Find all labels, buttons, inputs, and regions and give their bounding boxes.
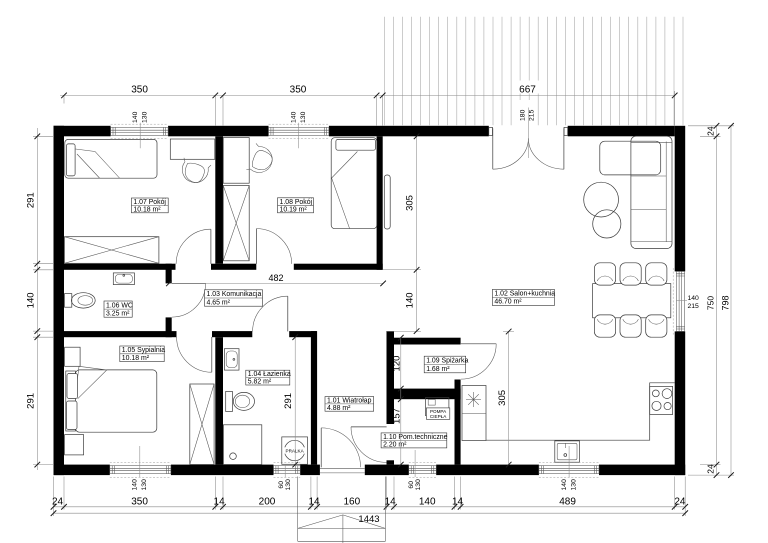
svg-text:1.10 Pom.techniczne: 1.10 Pom.techniczne <box>383 434 448 441</box>
svg-text:667: 667 <box>519 84 536 95</box>
svg-text:157: 157 <box>392 408 403 424</box>
svg-text:1.06 WC: 1.06 WC <box>106 302 133 309</box>
svg-text:215: 215 <box>688 303 700 310</box>
svg-text:120: 120 <box>392 356 403 372</box>
svg-text:482: 482 <box>268 273 283 283</box>
svg-text:130: 130 <box>300 111 307 123</box>
svg-text:798: 798 <box>721 295 731 310</box>
svg-text:291: 291 <box>25 192 36 208</box>
svg-text:1.03 Komunikacja: 1.03 Komunikacja <box>207 291 262 298</box>
svg-text:140: 140 <box>405 292 416 308</box>
svg-text:130: 130 <box>571 479 578 491</box>
svg-text:4.65 m²: 4.65 m² <box>207 299 231 306</box>
svg-text:14: 14 <box>308 496 320 507</box>
svg-text:140: 140 <box>132 111 139 123</box>
svg-text:489: 489 <box>559 496 576 507</box>
svg-text:140: 140 <box>132 479 139 491</box>
svg-text:750: 750 <box>706 296 716 310</box>
svg-text:305: 305 <box>497 390 508 406</box>
svg-text:130: 130 <box>141 479 148 491</box>
svg-text:350: 350 <box>290 84 307 95</box>
svg-text:46.70 m²: 46.70 m² <box>494 299 522 306</box>
svg-text:140: 140 <box>25 292 36 308</box>
svg-text:10.19 m²: 10.19 m² <box>280 206 308 213</box>
svg-text:200: 200 <box>259 496 276 507</box>
svg-text:24: 24 <box>674 496 686 507</box>
svg-text:4.88 m²: 4.88 m² <box>327 405 351 412</box>
svg-text:291: 291 <box>25 393 36 409</box>
svg-text:350: 350 <box>131 84 148 95</box>
svg-text:10.18 m²: 10.18 m² <box>133 207 161 214</box>
svg-text:1.04 Łazienka: 1.04 Łazienka <box>248 371 291 378</box>
svg-text:130: 130 <box>415 479 422 491</box>
svg-text:24: 24 <box>52 496 64 507</box>
svg-text:140: 140 <box>419 496 436 507</box>
svg-text:14: 14 <box>452 496 464 507</box>
svg-text:3.25 m²: 3.25 m² <box>106 310 130 317</box>
svg-text:350: 350 <box>131 496 148 507</box>
svg-text:130: 130 <box>142 111 149 123</box>
svg-text:1.08 Pokój: 1.08 Pokój <box>280 199 313 206</box>
svg-text:180: 180 <box>519 109 526 121</box>
svg-text:14: 14 <box>385 496 397 507</box>
svg-text:24: 24 <box>706 464 716 474</box>
svg-text:1.01 Wiatrołap: 1.01 Wiatrołap <box>327 398 372 405</box>
svg-text:291: 291 <box>283 393 294 409</box>
svg-text:140: 140 <box>561 479 568 491</box>
svg-text:140: 140 <box>291 111 298 123</box>
svg-text:24: 24 <box>706 126 716 136</box>
svg-text:130: 130 <box>285 479 292 491</box>
svg-text:10.18 m²: 10.18 m² <box>122 355 150 362</box>
svg-text:5.82 m²: 5.82 m² <box>248 379 272 386</box>
svg-text:215: 215 <box>529 109 536 121</box>
svg-text:1.02 Salon+kuchnia: 1.02 Salon+kuchnia <box>494 291 555 298</box>
svg-text:14: 14 <box>214 496 226 507</box>
svg-text:CIEPŁA: CIEPŁA <box>430 414 447 419</box>
svg-text:140: 140 <box>688 295 700 302</box>
svg-text:160: 160 <box>343 496 360 507</box>
svg-text:1.05 Sypialnia: 1.05 Sypialnia <box>122 347 165 354</box>
svg-text:1.68 m²: 1.68 m² <box>426 366 450 373</box>
svg-text:1.09 Spiżarka: 1.09 Spiżarka <box>426 358 468 365</box>
svg-text:2.20 m²: 2.20 m² <box>383 442 407 449</box>
svg-text:1.07 Pokój: 1.07 Pokój <box>133 199 166 206</box>
svg-text:305: 305 <box>405 195 416 211</box>
